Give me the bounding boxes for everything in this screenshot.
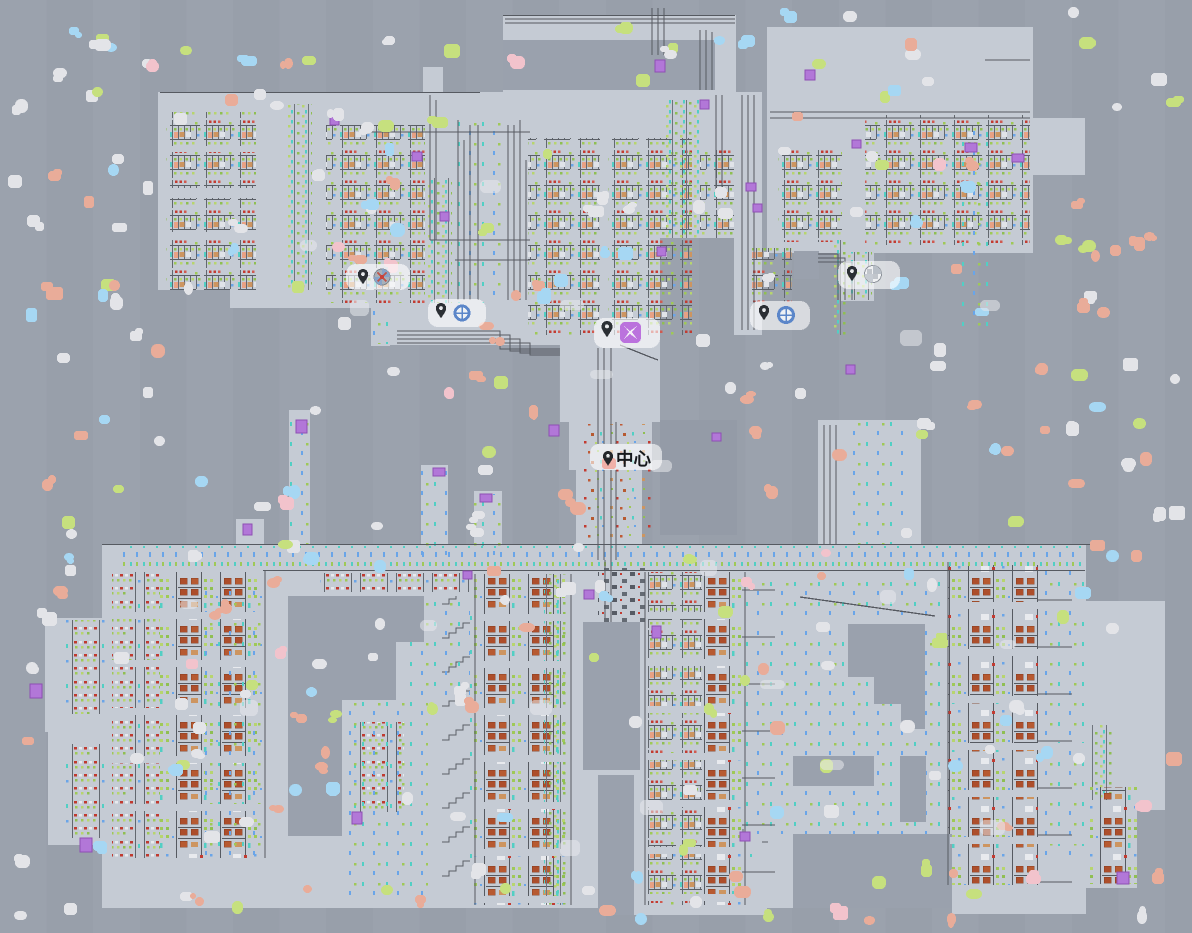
svg-text:中心: 中心 xyxy=(616,449,651,469)
